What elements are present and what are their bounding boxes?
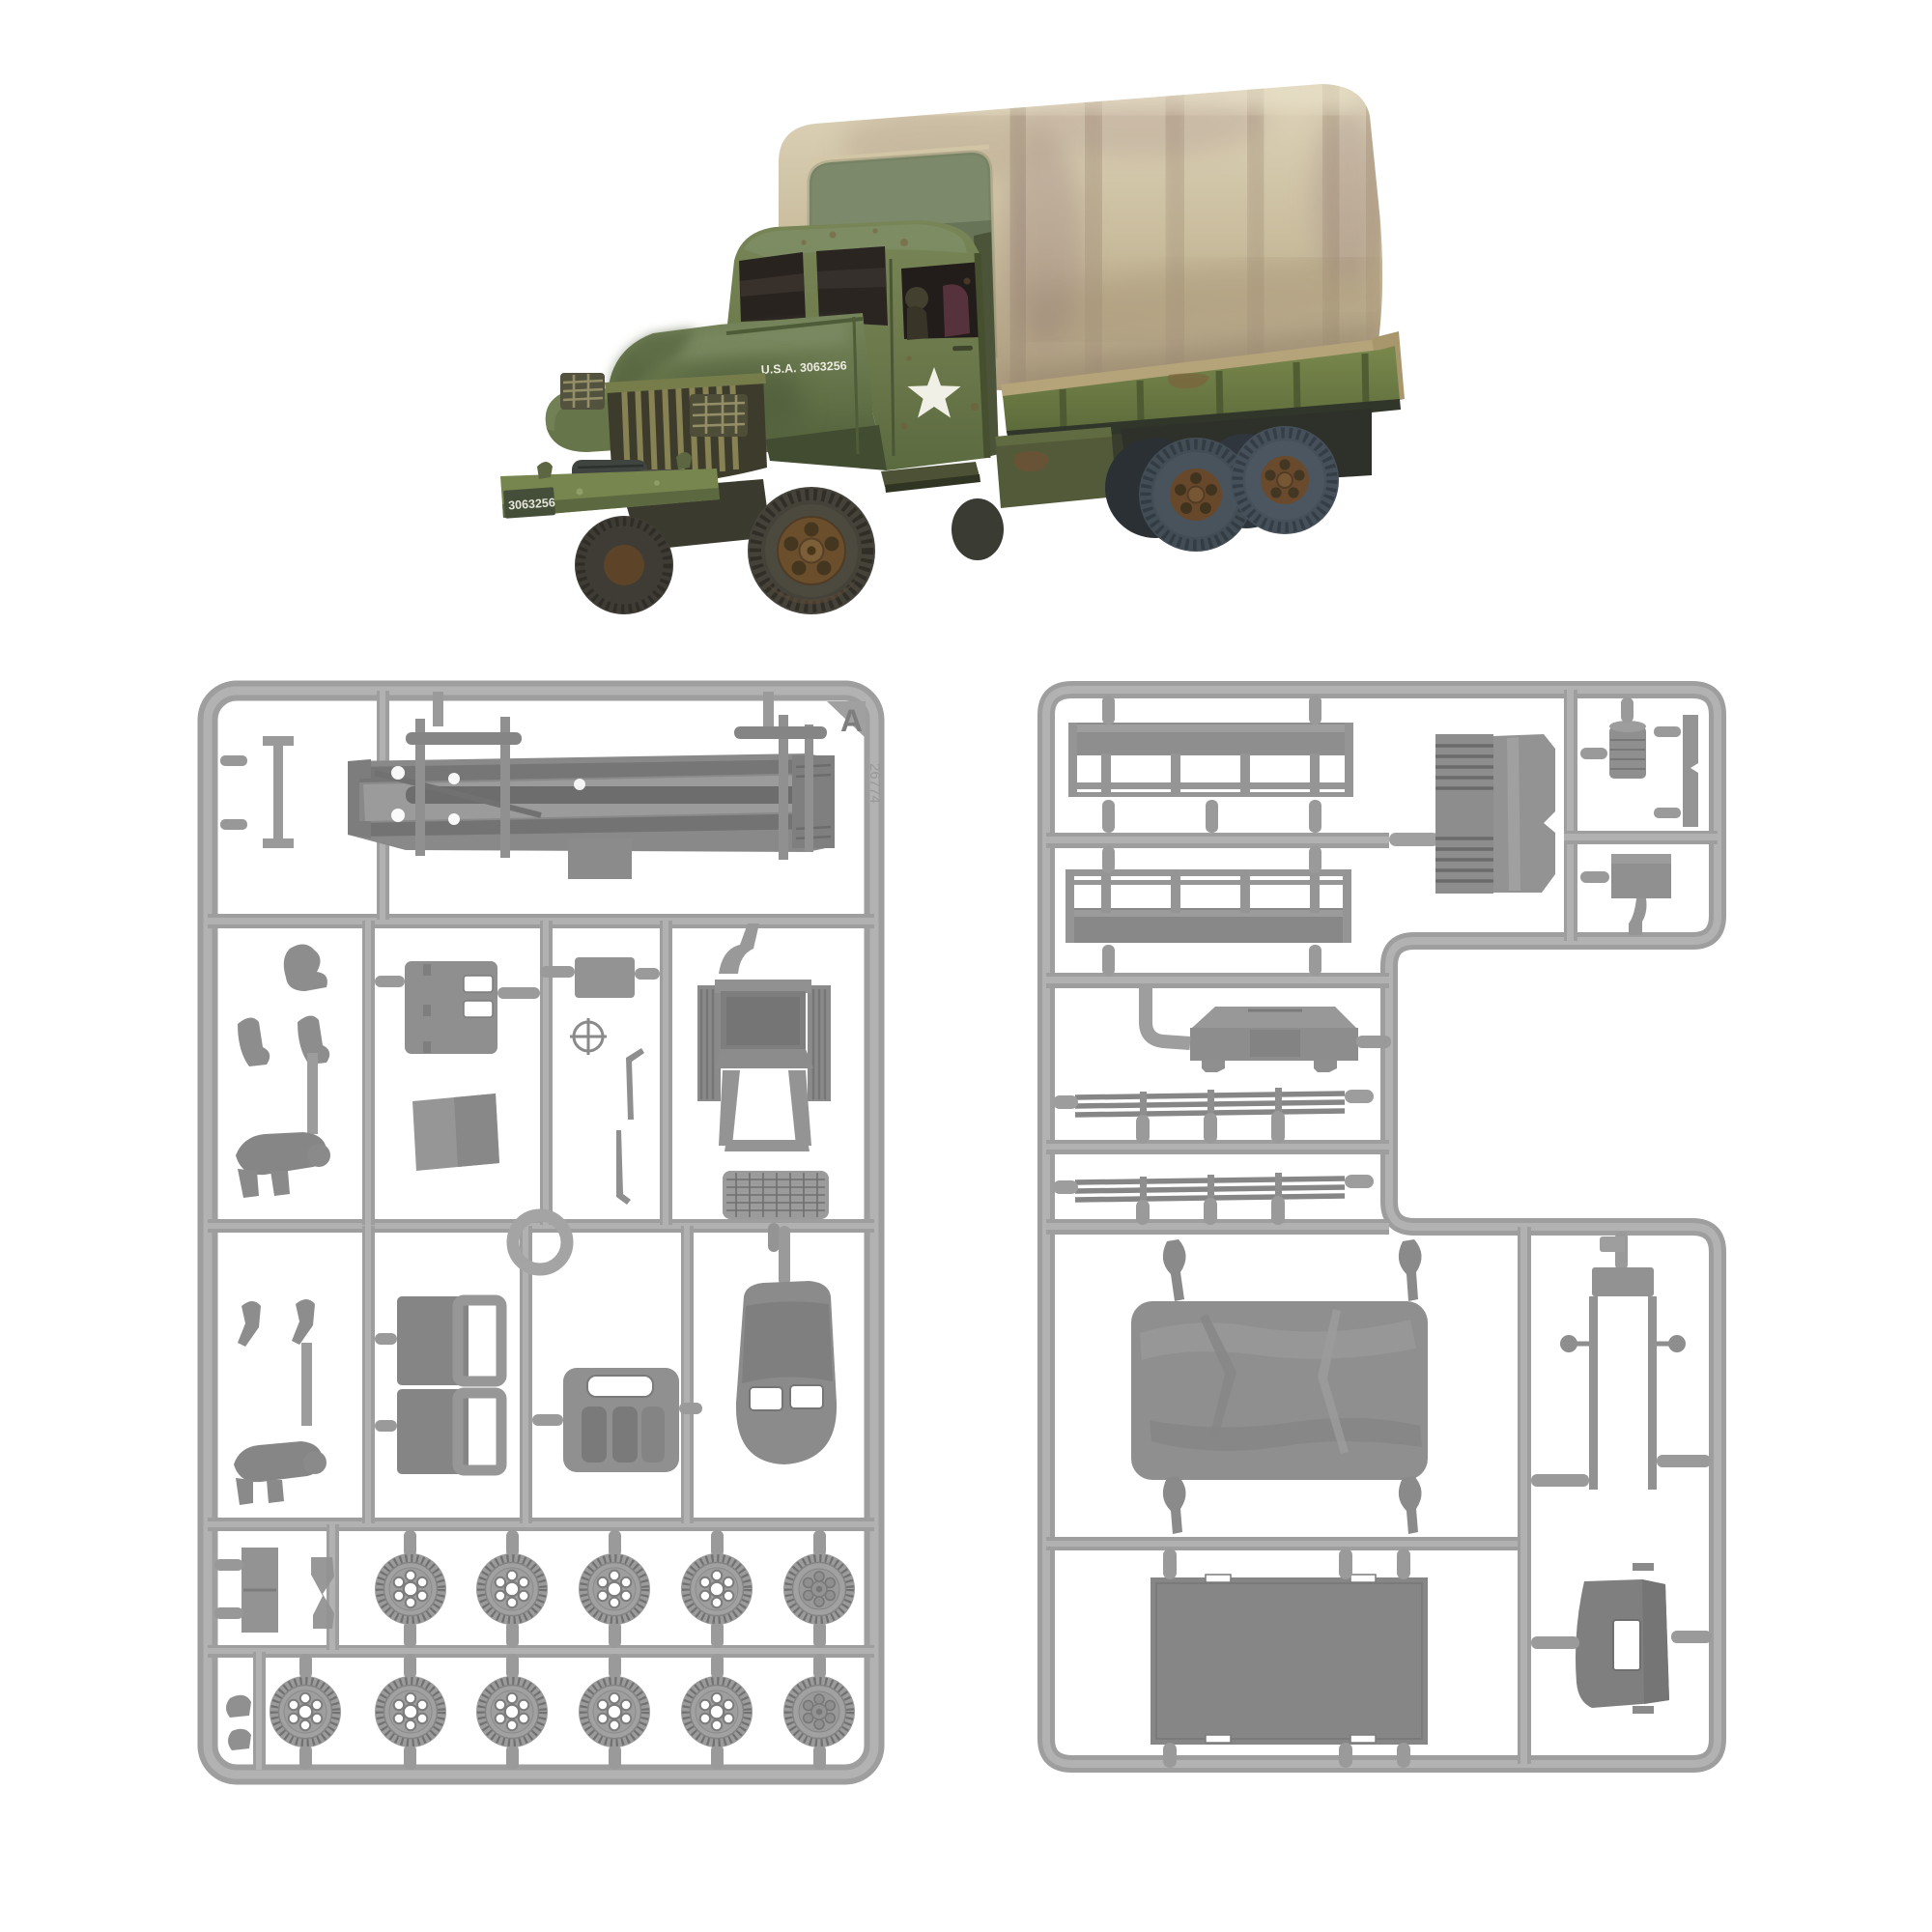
svg-text:A: A [840,703,863,738]
svg-text:26774: 26774 [867,763,883,804]
